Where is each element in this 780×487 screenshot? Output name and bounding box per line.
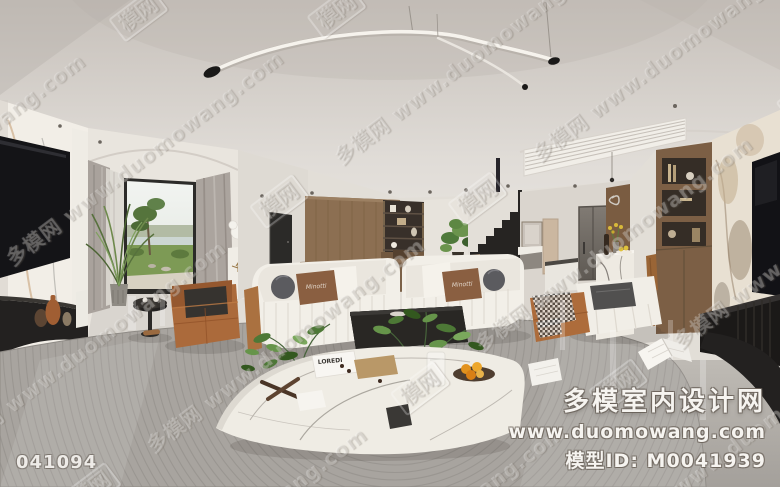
gray-pillow [590,282,636,310]
wine-bottle [604,234,609,255]
panorama-render: Minotti Minotti [0,0,780,487]
tv-screen-left [0,136,70,278]
dark-pillow [184,286,228,318]
glass-vase [427,352,445,386]
pillow-brand-text: Minotti [306,283,327,291]
ball-pillow [271,275,295,299]
accent-armchair [170,280,240,348]
pillow-brand-text: Minotti [452,281,473,289]
ball-pillow [483,269,505,291]
panorama-screenshot: Minotti Minotti [0,0,780,487]
dark-tray [386,404,412,429]
wood-cabinet [656,142,712,334]
kitchenette-cabinet [545,258,578,292]
